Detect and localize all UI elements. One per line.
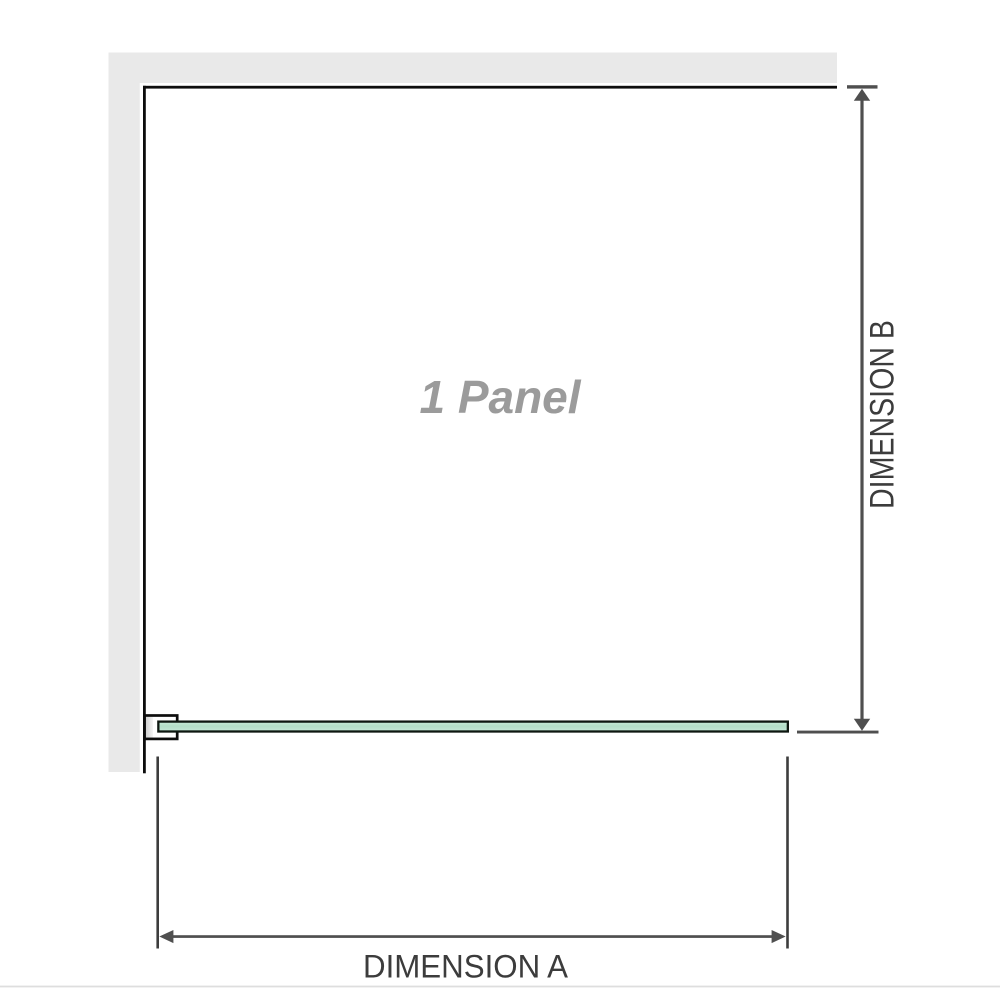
- svg-text:DIMENSION B: DIMENSION B: [864, 320, 902, 509]
- svg-text:1 Panel: 1 Panel: [419, 371, 581, 423]
- svg-text:DIMENSION A: DIMENSION A: [363, 948, 569, 984]
